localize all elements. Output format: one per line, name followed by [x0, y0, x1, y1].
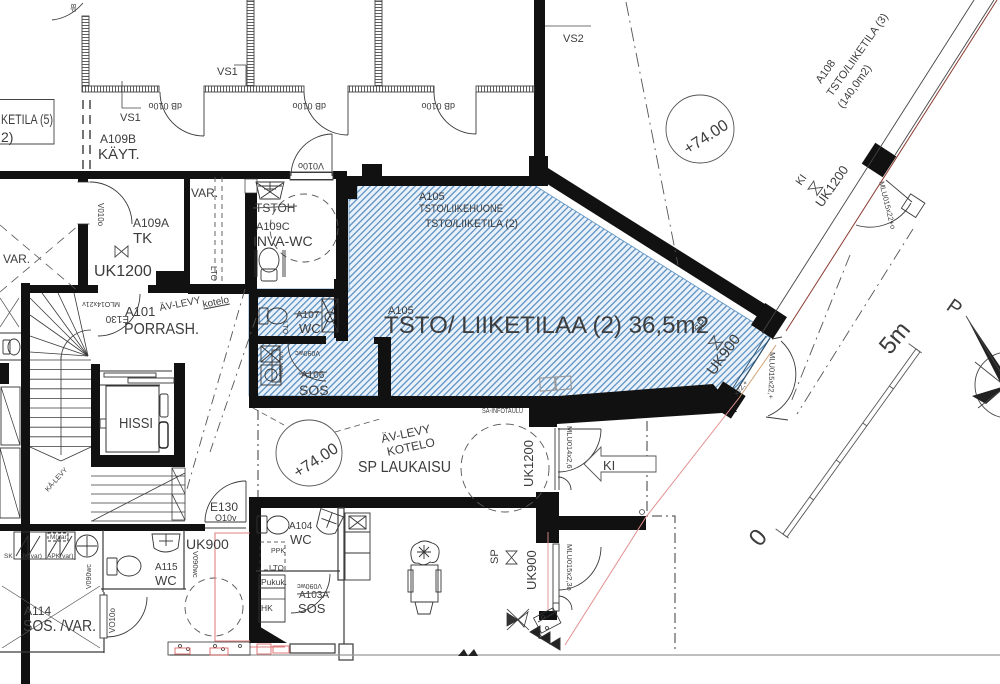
- svg-text:SOS: SOS: [299, 382, 329, 398]
- svg-text:UK900: UK900: [186, 536, 229, 552]
- svg-text:KÄYT.: KÄYT.: [98, 146, 140, 163]
- svg-text:A103A: A103A: [299, 590, 329, 601]
- svg-text:LTO: LTO: [281, 321, 288, 335]
- svg-text:MLU015x2,3o: MLU015x2,3o: [565, 544, 574, 591]
- svg-text:Pukuk.: Pukuk.: [261, 577, 287, 587]
- svg-text:PPK: PPK: [271, 548, 285, 555]
- svg-text:LTO: LTO: [269, 564, 284, 573]
- svg-text:M(var): M(var): [50, 534, 69, 541]
- svg-text:SK: SK: [4, 553, 13, 560]
- svg-text:E130: E130: [105, 313, 129, 324]
- svg-text:SP: SP: [489, 549, 501, 564]
- svg-text:V090wc: V090wc: [191, 551, 200, 578]
- svg-text:V090wc: V090wc: [297, 582, 322, 589]
- svg-text:LTO: LTO: [209, 266, 218, 281]
- svg-text:WC: WC: [299, 321, 321, 336]
- svg-text:HK: HK: [261, 603, 273, 613]
- svg-text:SOS: SOS: [298, 601, 326, 616]
- svg-text:TSTO/ LIIKETILAA (2) 36,5m2: TSTO/ LIIKETILAA (2) 36,5m2: [384, 312, 709, 339]
- svg-text:dB 010o: dB 010o: [421, 101, 455, 111]
- svg-text:dB 010o: dB 010o: [148, 101, 182, 111]
- svg-text:V010o: V010o: [96, 203, 105, 227]
- svg-text:VO10o: VO10o: [108, 608, 117, 633]
- svg-text:A107: A107: [296, 310, 320, 321]
- svg-text:VS1: VS1: [120, 112, 141, 124]
- svg-text:MLU014x2,6: MLU014x2,6: [565, 426, 574, 469]
- svg-text:A109B: A109B: [100, 132, 136, 146]
- svg-text:KETILA (5): KETILA (5): [1, 111, 53, 127]
- svg-text:E130: E130: [210, 500, 238, 514]
- svg-text:A104: A104: [289, 521, 313, 532]
- svg-text:A109A: A109A: [133, 216, 169, 230]
- svg-text:SP LAUKAISU: SP LAUKAISU: [358, 459, 451, 476]
- svg-text:A105: A105: [419, 191, 445, 203]
- svg-text:JK(var): JK(var): [21, 553, 42, 560]
- svg-text:A114: A114: [24, 604, 51, 618]
- svg-text:WC: WC: [155, 573, 177, 588]
- svg-text:VS1: VS1: [217, 66, 238, 78]
- svg-text:WC: WC: [290, 532, 312, 547]
- svg-text:A106: A106: [301, 370, 325, 381]
- svg-text:UK1200: UK1200: [94, 263, 152, 280]
- svg-text:MLU015x22,+: MLU015x22,+: [766, 352, 777, 400]
- svg-text:SOS. /VAR.: SOS. /VAR.: [23, 618, 96, 635]
- svg-text:A109C: A109C: [256, 221, 290, 233]
- svg-text:VALAISIN: VALAISIN: [277, 352, 283, 376]
- svg-text:V090wc: V090wc: [86, 564, 93, 589]
- svg-text:A115: A115: [155, 562, 178, 573]
- svg-text:V010o: V010o: [298, 161, 324, 171]
- svg-text:dB: dB: [71, 3, 78, 12]
- svg-text:HISSI: HISSI: [119, 415, 153, 432]
- svg-text:TSTO/LIIKEHUONE: TSTO/LIIKEHUONE: [419, 203, 503, 215]
- svg-text:dB 010o: dB 010o: [292, 101, 326, 111]
- svg-text:TK: TK: [133, 230, 152, 247]
- svg-text:INVA-WC: INVA-WC: [253, 233, 313, 249]
- svg-text:VAR.: VAR.: [191, 186, 218, 200]
- svg-text:APK(var): APK(var): [47, 553, 73, 560]
- svg-text:TSTO/LIIKETILA (2): TSTO/LIIKETILA (2): [425, 218, 518, 230]
- svg-text:VAR.: VAR.: [3, 252, 30, 266]
- svg-text:2): 2): [1, 129, 13, 145]
- svg-text:PORRASH.: PORRASH.: [124, 321, 199, 338]
- svg-text:MLO14x21v: MLO14x21v: [82, 300, 120, 307]
- svg-text:UK900: UK900: [524, 550, 539, 590]
- svg-text:KI: KI: [603, 458, 615, 473]
- svg-text:SÄ-INFOTAULU: SÄ-INFOTAULU: [482, 406, 523, 415]
- svg-text:UK1200: UK1200: [521, 440, 536, 487]
- svg-text:O10v: O10v: [215, 513, 237, 523]
- svg-text:V090wc: V090wc: [295, 349, 320, 356]
- svg-text:VS2: VS2: [563, 33, 584, 45]
